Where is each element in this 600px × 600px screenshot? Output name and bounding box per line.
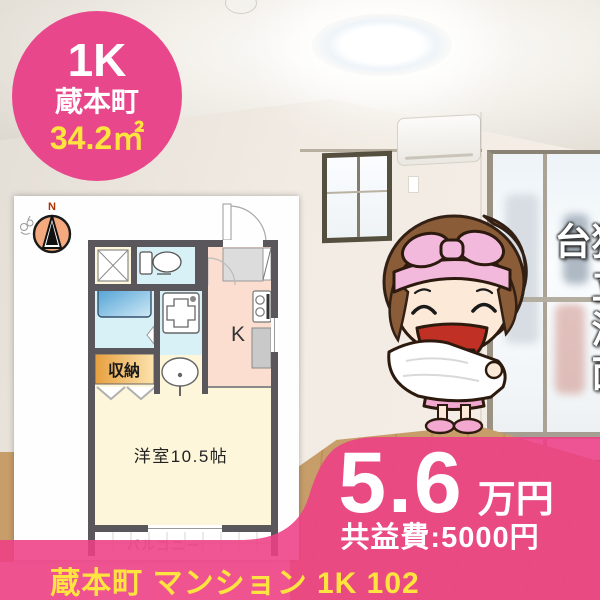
common-fee: 共益費:5000円 [310,514,570,556]
badge-floor-area: 34.2㎡ [50,121,144,156]
wood-floor-edge [0,452,14,562]
room-label: 洋室10.5帖 [134,447,229,466]
window-mullion [357,157,360,237]
mascot-character [376,200,536,440]
listing-caption: 蔵本町 マンション 1K 102 [0,558,470,600]
storage-label: 収納 [108,361,140,380]
sketch-doodle [21,216,34,234]
front-door [223,204,266,241]
floor-plan: 収納 [14,196,299,560]
bathtub [98,287,151,317]
kitchen-label: K [231,323,245,346]
listing-card: 収納 [0,0,600,600]
laundry-pan-icon [163,293,199,333]
kitchen-counter [252,328,271,368]
air-conditioner [397,114,481,166]
mascot-hand [486,362,502,378]
ceiling-light [312,14,452,76]
rent-unit: 万円 [478,481,554,519]
balcony-label: バルコニー [127,538,202,553]
info-badge: 1K 蔵本町 34.2㎡ [12,11,182,181]
storage-closet: 収納 [95,354,154,384]
compass-label: N [48,201,56,213]
price-block: 5.6 万円 [296,443,596,525]
rent-value: 5.6 [338,443,464,525]
toilet-icon [140,252,181,274]
stove-icon [253,291,271,322]
entry-genkan [223,248,271,281]
feature-ribbon: 独立洗面台 [551,222,600,437]
ps-shaft [98,250,128,281]
compass: N [34,201,70,252]
door-frame [543,154,547,472]
wall-outlet [408,176,419,193]
ac-vent [405,153,474,160]
badge-location: 蔵本町 [55,87,139,118]
badge-layout-type: 1K [68,36,127,84]
balcony: バルコニー [95,532,271,554]
